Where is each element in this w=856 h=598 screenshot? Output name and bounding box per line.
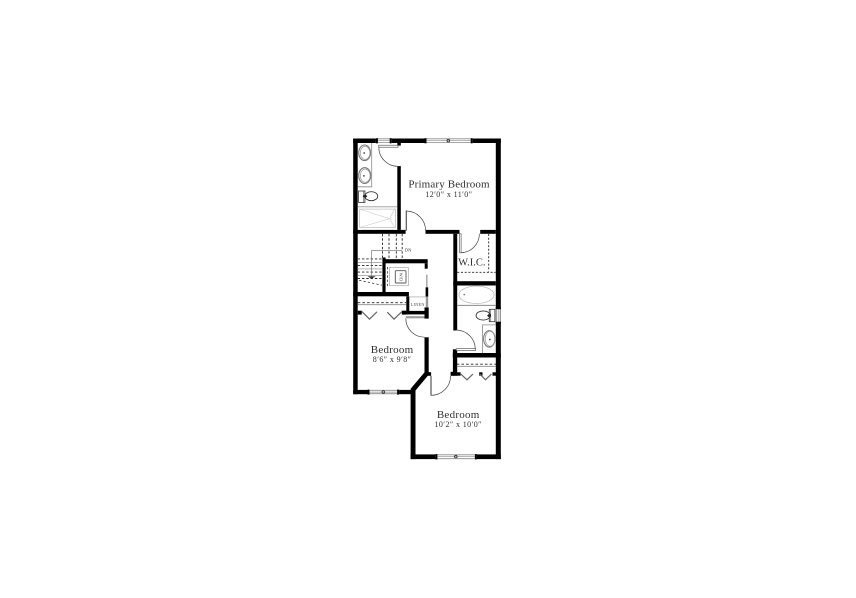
svg-text:LINEN: LINEN: [411, 302, 425, 307]
svg-text:8′6″ x 9′8″: 8′6″ x 9′8″: [373, 355, 412, 364]
svg-text:DN: DN: [405, 247, 412, 252]
svg-text:10′2″ x 10′0″: 10′2″ x 10′0″: [435, 420, 482, 429]
svg-text:12′0″ x 11′0″: 12′0″ x 11′0″: [425, 190, 472, 199]
svg-text:Primary Bedroom: Primary Bedroom: [408, 178, 490, 190]
svg-text:W.I.C.: W.I.C.: [458, 257, 485, 268]
svg-text:W/D: W/D: [399, 273, 404, 282]
